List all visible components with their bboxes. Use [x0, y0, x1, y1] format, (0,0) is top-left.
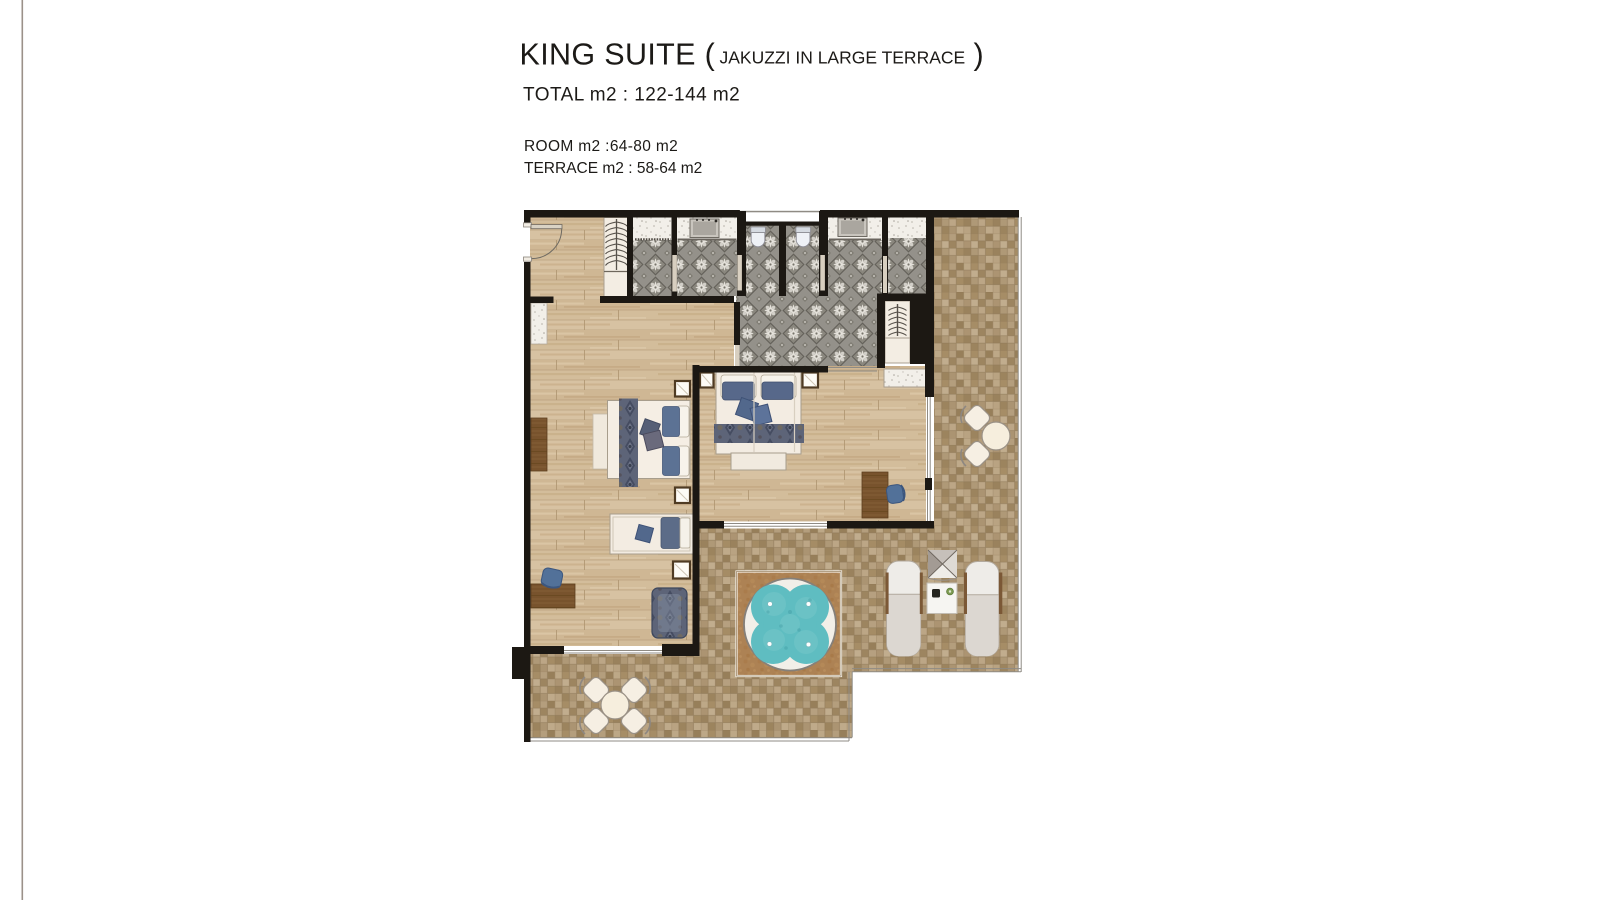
svg-text:JAKUZZI IN LARGE TERRACE: JAKUZZI IN LARGE TERRACE [720, 47, 966, 67]
svg-text:ROOM m2 :64-80 m2: ROOM m2 :64-80 m2 [524, 138, 678, 155]
svg-text:KING SUITE (: KING SUITE ( [520, 38, 716, 72]
svg-text:TERRACE m2 : 58-64 m2: TERRACE m2 : 58-64 m2 [524, 160, 702, 177]
svg-text:): ) [974, 38, 984, 72]
svg-text:TOTAL m2 : 122-144 m2: TOTAL m2 : 122-144 m2 [523, 84, 740, 105]
